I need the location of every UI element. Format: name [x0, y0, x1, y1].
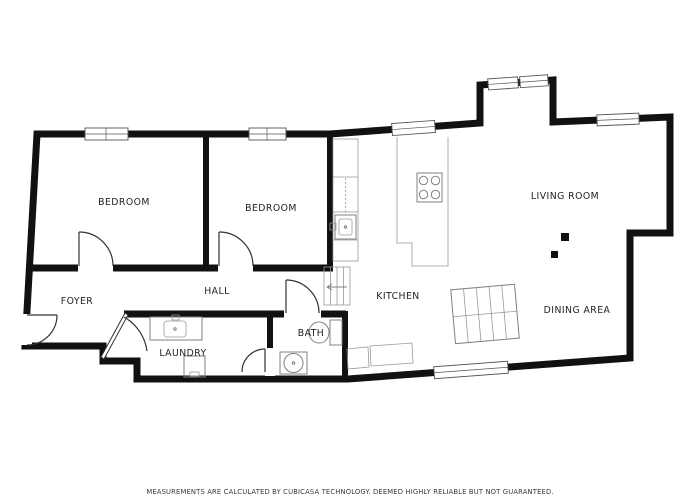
bedroom2-door [219, 232, 253, 266]
living-room-bay-windows [488, 75, 549, 90]
living-room-window [597, 113, 639, 126]
kitchen-sink [330, 215, 356, 239]
kitchen-window [392, 120, 436, 135]
floor-plan-page: BEDROOM BEDROOM LIVING ROOM KITCHEN DINI… [0, 0, 700, 500]
stove [417, 173, 442, 202]
room-label-bedroom-2: BEDROOM [245, 203, 297, 214]
kitchen-counter [330, 139, 358, 261]
column-post-1 [561, 233, 569, 241]
bedroom1-door [79, 232, 113, 266]
bath-door-gap [284, 309, 321, 319]
washer [184, 356, 205, 377]
bedroom1-window [85, 128, 128, 140]
room-label-bath: BATH [298, 328, 325, 339]
room-label-hall: HALL [204, 286, 230, 297]
kitchen-base-cabinets [347, 343, 413, 369]
bath-sink [280, 352, 307, 374]
dining-table [451, 284, 519, 343]
fixtures [150, 137, 569, 377]
laundry-bath-door [242, 349, 265, 372]
laundry-bath-door-gap [265, 348, 275, 376]
room-label-foyer: FOYER [61, 296, 94, 307]
room-label-dining-area: DINING AREA [544, 305, 611, 316]
entry-door [101, 313, 147, 359]
room-label-laundry: LAUNDRY [159, 348, 206, 359]
kitchen-peninsula [397, 137, 448, 266]
floor-plan-drawing: BEDROOM BEDROOM LIVING ROOM KITCHEN DINI… [0, 0, 700, 500]
stairs [324, 267, 350, 305]
measurement-disclaimer: MEASUREMENTS ARE CALCULATED BY CUBICASA … [146, 488, 553, 496]
bedroom1-door-gap [78, 263, 113, 273]
foyer-door-gap [21, 314, 32, 345]
bedroom2-window [249, 128, 286, 140]
dining-window [434, 361, 509, 379]
room-label-living-room: LIVING ROOM [531, 191, 599, 202]
bath-door [286, 280, 319, 313]
room-label-bedroom-1: BEDROOM [98, 197, 150, 208]
room-label-kitchen: KITCHEN [376, 291, 419, 302]
bedroom2-door-gap [218, 263, 253, 273]
door-openings [21, 263, 321, 376]
laundry-sink [150, 315, 202, 340]
column-post-2 [551, 251, 558, 258]
room-labels: BEDROOM BEDROOM LIVING ROOM KITCHEN DINI… [61, 191, 611, 359]
